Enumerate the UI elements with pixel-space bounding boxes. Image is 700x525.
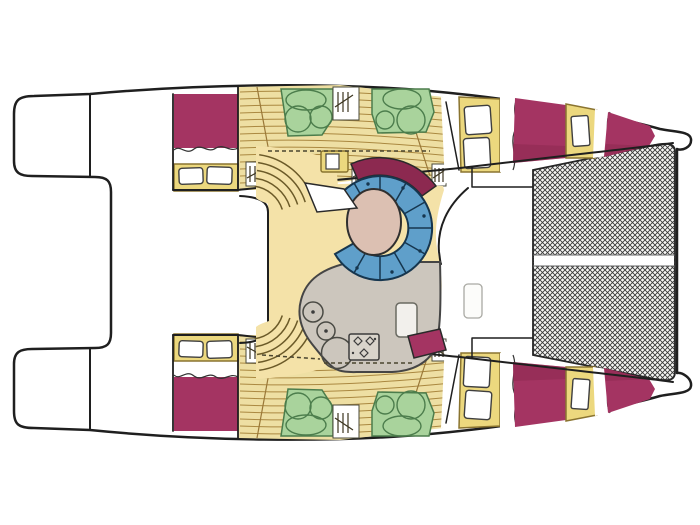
stove-hob <box>349 334 379 360</box>
catamaran-deck-plan <box>0 0 700 525</box>
drain-dot <box>311 310 315 314</box>
hob-knob <box>374 338 376 340</box>
drain-dot <box>324 329 328 333</box>
net-crossbeam <box>534 255 674 266</box>
deck-hatch <box>464 284 482 318</box>
salon-locker <box>321 151 348 172</box>
salon-table <box>347 189 401 255</box>
fridge-top <box>396 303 417 337</box>
trampoline-net <box>533 144 675 380</box>
deck-plan-figure <box>0 0 700 525</box>
hob-knob <box>352 352 354 354</box>
